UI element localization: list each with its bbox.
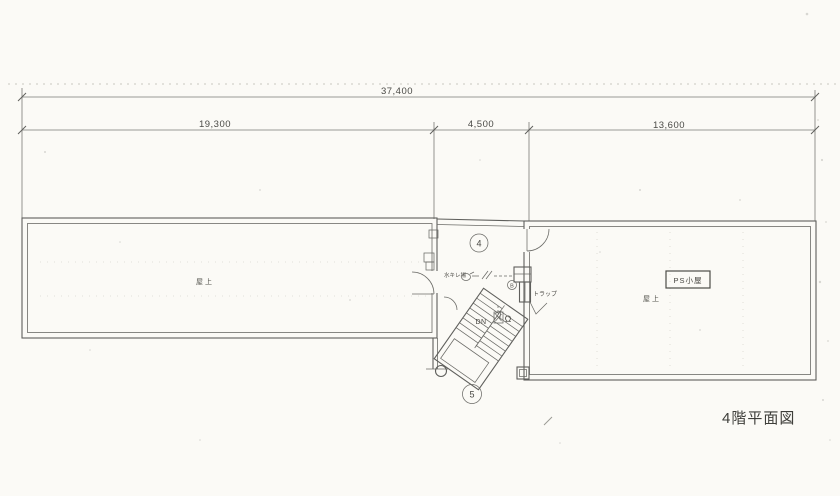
corner-column-box-inner (520, 370, 527, 377)
wall-pilaster (426, 262, 434, 270)
scan-noise-layer (8, 13, 838, 444)
right-roof-inner-wall (530, 227, 811, 375)
drain-symbol-label: Ω (505, 314, 512, 324)
right-roof-label: 屋上 (643, 294, 661, 303)
dimension-layer: 37,400 19,300 4,500 13,600 (18, 86, 819, 221)
trap-label: トラップ (533, 291, 557, 298)
left-roof-inner-wall (28, 224, 433, 333)
dim-label-overall: 37,400 (381, 86, 413, 97)
right-roof-outer-wall (524, 221, 816, 380)
chevron-mark (530, 302, 547, 314)
lower-level-number: 5 (469, 390, 474, 400)
stairwell-group (434, 288, 528, 389)
dim-label-center-span: 4,500 (468, 119, 494, 130)
stair-landing (441, 339, 489, 383)
left-roof-label: 屋上 (196, 277, 214, 286)
stair-top-door-arc (444, 297, 457, 310)
circled-mark-letter: B (510, 284, 514, 290)
upper-level-number: 4 (476, 239, 481, 249)
shaft-box-upper (514, 267, 531, 282)
plan-layer (22, 218, 816, 390)
annotation-layer: 屋上 屋上 PS小屋 4 5 DN 水キレ場 B トラップ Ω 4階 (196, 234, 795, 427)
stair-column-circle (436, 366, 447, 377)
stray-slash-mark (544, 417, 552, 425)
washing-area-label: 水キレ場 (444, 271, 467, 279)
floor-plan-svg: 37,400 19,300 4,500 13,600 (0, 0, 840, 496)
ps-shed-label: PS小屋 (673, 276, 702, 285)
corner-column-box (517, 367, 529, 379)
stair-down-label: DN (475, 319, 486, 326)
drawing-title: 4階平面図 (722, 410, 795, 427)
wall-pilaster (424, 253, 434, 262)
dim-label-right-span: 13,600 (653, 120, 685, 131)
drawing-sheet: 37,400 19,300 4,500 13,600 (0, 0, 840, 496)
leader-break-marks (482, 271, 492, 279)
left-roof-outer-wall (22, 218, 437, 338)
stair-bay-top-wall-inner (437, 225, 524, 227)
stair-bay-top-wall-outer (437, 219, 524, 221)
dim-label-left-span: 19,300 (199, 119, 231, 130)
